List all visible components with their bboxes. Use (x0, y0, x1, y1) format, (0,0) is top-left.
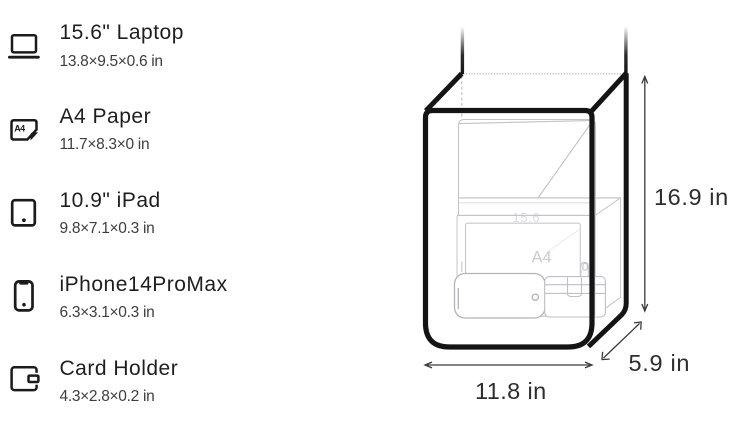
svg-text:A4 Paper: A4 Paper (60, 105, 152, 128)
svg-text:9.8×7.1×0.3 in: 9.8×7.1×0.3 in (60, 220, 155, 237)
svg-text:Card Holder: Card Holder (60, 357, 179, 380)
svg-text:16.9 in: 16.9 in (654, 184, 729, 210)
svg-text:4.3×2.8×0.2 in: 4.3×2.8×0.2 in (60, 388, 155, 405)
svg-text:11.8 in: 11.8 in (475, 378, 547, 404)
svg-text:A4: A4 (14, 124, 25, 134)
svg-text:13.8×9.5×0.6 in: 13.8×9.5×0.6 in (60, 53, 163, 70)
svg-text:15.6" Laptop: 15.6" Laptop (60, 21, 184, 44)
svg-text:5.9 in: 5.9 in (629, 350, 691, 376)
svg-text:iPhone14ProMax: iPhone14ProMax (60, 273, 228, 296)
svg-text:11.7×8.3×0 in: 11.7×8.3×0 in (60, 136, 150, 153)
svg-text:10.9" iPad: 10.9" iPad (60, 189, 161, 212)
svg-text:6.3×3.1×0.3 in: 6.3×3.1×0.3 in (60, 304, 155, 321)
svg-text:A4: A4 (532, 249, 552, 267)
